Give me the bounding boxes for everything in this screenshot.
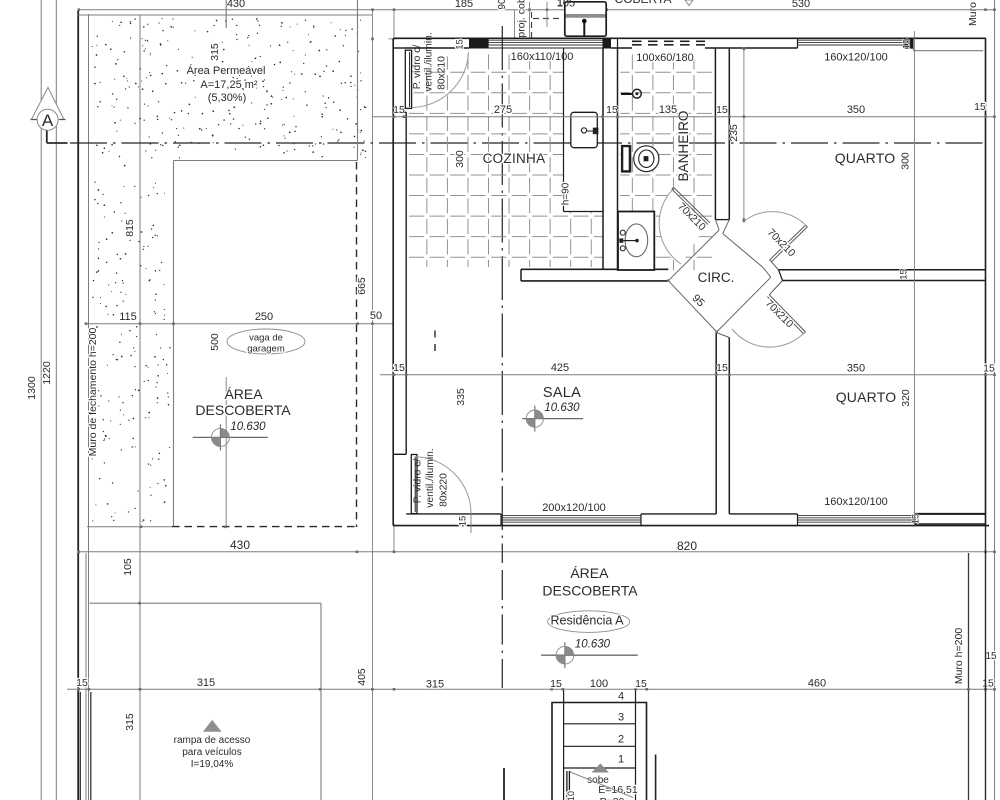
- svg-text:15: 15: [899, 269, 910, 280]
- svg-text:DESCOBERTA: DESCOBERTA: [542, 583, 638, 599]
- svg-text:315: 315: [426, 679, 444, 691]
- svg-text:160x120/100: 160x120/100: [824, 52, 888, 64]
- svg-text:530: 530: [792, 0, 810, 10]
- svg-text:P. vidro c/: P. vidro c/: [413, 459, 424, 504]
- svg-text:ventil./ilumin.: ventil./ilumin.: [425, 448, 436, 508]
- svg-text:665: 665: [356, 277, 368, 295]
- svg-text:320: 320: [900, 389, 912, 407]
- svg-text:80x220: 80x220: [439, 473, 450, 507]
- svg-text:250: 250: [255, 311, 273, 323]
- svg-text:15: 15: [458, 516, 469, 527]
- svg-text:rampa de acesso: rampa de acesso: [174, 735, 251, 746]
- svg-text:QUARTO: QUARTO: [836, 389, 897, 405]
- svg-text:315: 315: [209, 43, 221, 61]
- svg-text:10: 10: [566, 791, 576, 800]
- svg-text:ventil./ilumin.: ventil./ilumin.: [424, 32, 435, 92]
- svg-text:DESCOBERTA: DESCOBERTA: [195, 402, 291, 418]
- svg-text:200x120/100: 200x120/100: [542, 502, 606, 514]
- svg-text:15: 15: [393, 104, 405, 116]
- svg-text:430: 430: [227, 0, 245, 10]
- svg-text:Muro de fechamento h=200: Muro de fechamento h=200: [87, 327, 99, 456]
- svg-text:15: 15: [902, 39, 913, 50]
- svg-text:50: 50: [370, 310, 382, 322]
- svg-text:Área Permeável: Área Permeável: [187, 64, 266, 77]
- svg-text:proj. cob.: proj. cob.: [516, 0, 528, 38]
- svg-text:80x210: 80x210: [437, 56, 448, 90]
- svg-text:h=90: h=90: [561, 182, 572, 205]
- svg-text:15: 15: [983, 363, 995, 375]
- svg-text:160x120/100: 160x120/100: [824, 496, 888, 508]
- svg-text:300: 300: [454, 150, 466, 168]
- svg-text:2: 2: [618, 734, 624, 746]
- svg-text:185: 185: [455, 0, 473, 10]
- svg-text:500: 500: [209, 333, 221, 351]
- svg-text:Muro: Muro: [967, 2, 979, 26]
- svg-text:235: 235: [728, 124, 740, 142]
- svg-text:Residência A: Residência A: [551, 614, 625, 628]
- svg-text:P=30: P=30: [600, 796, 625, 800]
- svg-text:CIRC.: CIRC.: [698, 270, 735, 285]
- svg-text:I=19,04%: I=19,04%: [191, 759, 234, 770]
- svg-text:Muro h=200: Muro h=200: [953, 628, 965, 684]
- svg-text:COBERTA: COBERTA: [615, 0, 672, 6]
- svg-text:15: 15: [982, 678, 994, 690]
- svg-text:15: 15: [606, 104, 618, 116]
- svg-text:15: 15: [716, 104, 728, 116]
- svg-text:105: 105: [122, 558, 134, 576]
- svg-text:405: 405: [356, 668, 368, 686]
- svg-text:815: 815: [124, 219, 136, 237]
- svg-text:350: 350: [847, 104, 865, 116]
- svg-text:(5,30%): (5,30%): [208, 92, 247, 104]
- svg-text:15: 15: [455, 39, 466, 50]
- svg-text:BANHEIRO: BANHEIRO: [676, 110, 691, 181]
- svg-text:A: A: [42, 111, 54, 130]
- svg-text:10.630: 10.630: [575, 639, 611, 651]
- svg-text:335: 335: [455, 388, 467, 406]
- svg-text:115: 115: [119, 311, 137, 323]
- svg-text:P. vidro c/: P. vidro c/: [412, 45, 423, 90]
- svg-text:10.630: 10.630: [230, 421, 266, 433]
- svg-text:1220: 1220: [41, 361, 53, 385]
- svg-text:1: 1: [618, 754, 624, 766]
- svg-text:SALA: SALA: [543, 385, 581, 401]
- svg-text:15: 15: [911, 514, 922, 525]
- svg-text:315: 315: [197, 677, 215, 689]
- svg-text:10.630: 10.630: [544, 402, 580, 414]
- svg-text:135: 135: [659, 104, 677, 116]
- svg-text:90: 90: [497, 0, 508, 10]
- svg-text:1300: 1300: [26, 376, 38, 400]
- svg-text:15: 15: [716, 362, 728, 374]
- svg-text:ÁREA: ÁREA: [570, 565, 609, 581]
- svg-text:15: 15: [985, 651, 997, 662]
- svg-text:COZINHA: COZINHA: [483, 151, 546, 166]
- svg-text:ÁREA: ÁREA: [224, 386, 263, 402]
- svg-text:460: 460: [808, 678, 826, 690]
- svg-text:350: 350: [847, 363, 865, 375]
- svg-text:15: 15: [393, 362, 405, 374]
- svg-text:15: 15: [974, 101, 986, 113]
- svg-text:430: 430: [230, 538, 250, 552]
- svg-text:para veículos: para veículos: [182, 747, 241, 758]
- svg-text:15: 15: [635, 678, 647, 690]
- svg-text:105: 105: [557, 0, 575, 10]
- svg-text:garagem: garagem: [247, 344, 285, 355]
- svg-text:275: 275: [494, 104, 512, 116]
- svg-text:315: 315: [124, 713, 136, 731]
- svg-text:15: 15: [76, 677, 88, 689]
- svg-text:15: 15: [550, 678, 562, 690]
- svg-text:3: 3: [618, 712, 624, 724]
- svg-text:QUARTO: QUARTO: [835, 150, 896, 166]
- svg-text:300: 300: [900, 152, 912, 170]
- svg-text:vaga de: vaga de: [249, 333, 283, 344]
- svg-text:425: 425: [551, 362, 569, 374]
- svg-text:A=17,25 m²: A=17,25 m²: [200, 79, 258, 91]
- svg-text:820: 820: [677, 539, 697, 553]
- svg-text:100x60/180: 100x60/180: [636, 52, 694, 64]
- svg-text:100: 100: [590, 678, 608, 690]
- svg-text:4: 4: [618, 691, 624, 703]
